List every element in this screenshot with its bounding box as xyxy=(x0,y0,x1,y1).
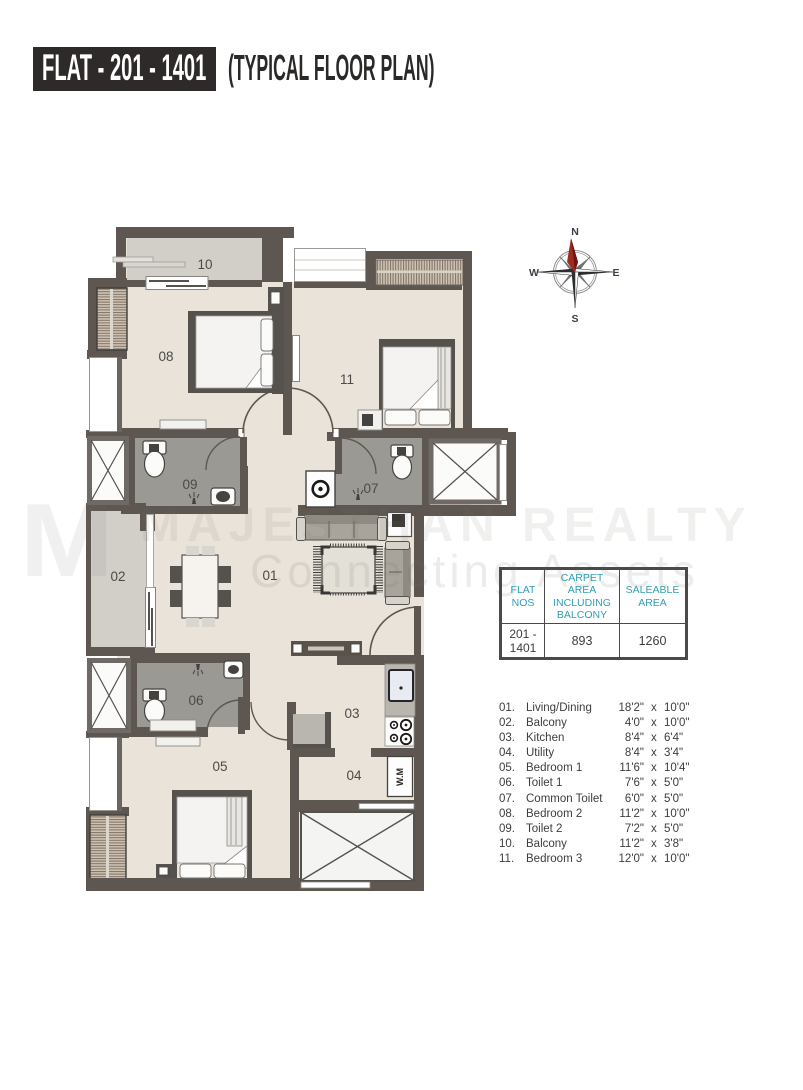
svg-text:06: 06 xyxy=(188,693,203,708)
svg-text:10: 10 xyxy=(197,257,212,272)
svg-text:S: S xyxy=(571,313,578,325)
svg-text:08: 08 xyxy=(158,349,173,364)
svg-text:09: 09 xyxy=(182,477,197,492)
svg-text:04: 04 xyxy=(346,768,362,783)
svg-text:N: N xyxy=(571,226,579,238)
svg-text:W: W xyxy=(529,267,539,279)
svg-text:11: 11 xyxy=(340,372,354,387)
svg-text:W.M: W.M xyxy=(395,768,405,786)
svg-text:05: 05 xyxy=(212,759,227,774)
svg-text:03: 03 xyxy=(344,706,359,721)
svg-text:E: E xyxy=(612,267,619,279)
svg-text:07: 07 xyxy=(363,481,378,496)
